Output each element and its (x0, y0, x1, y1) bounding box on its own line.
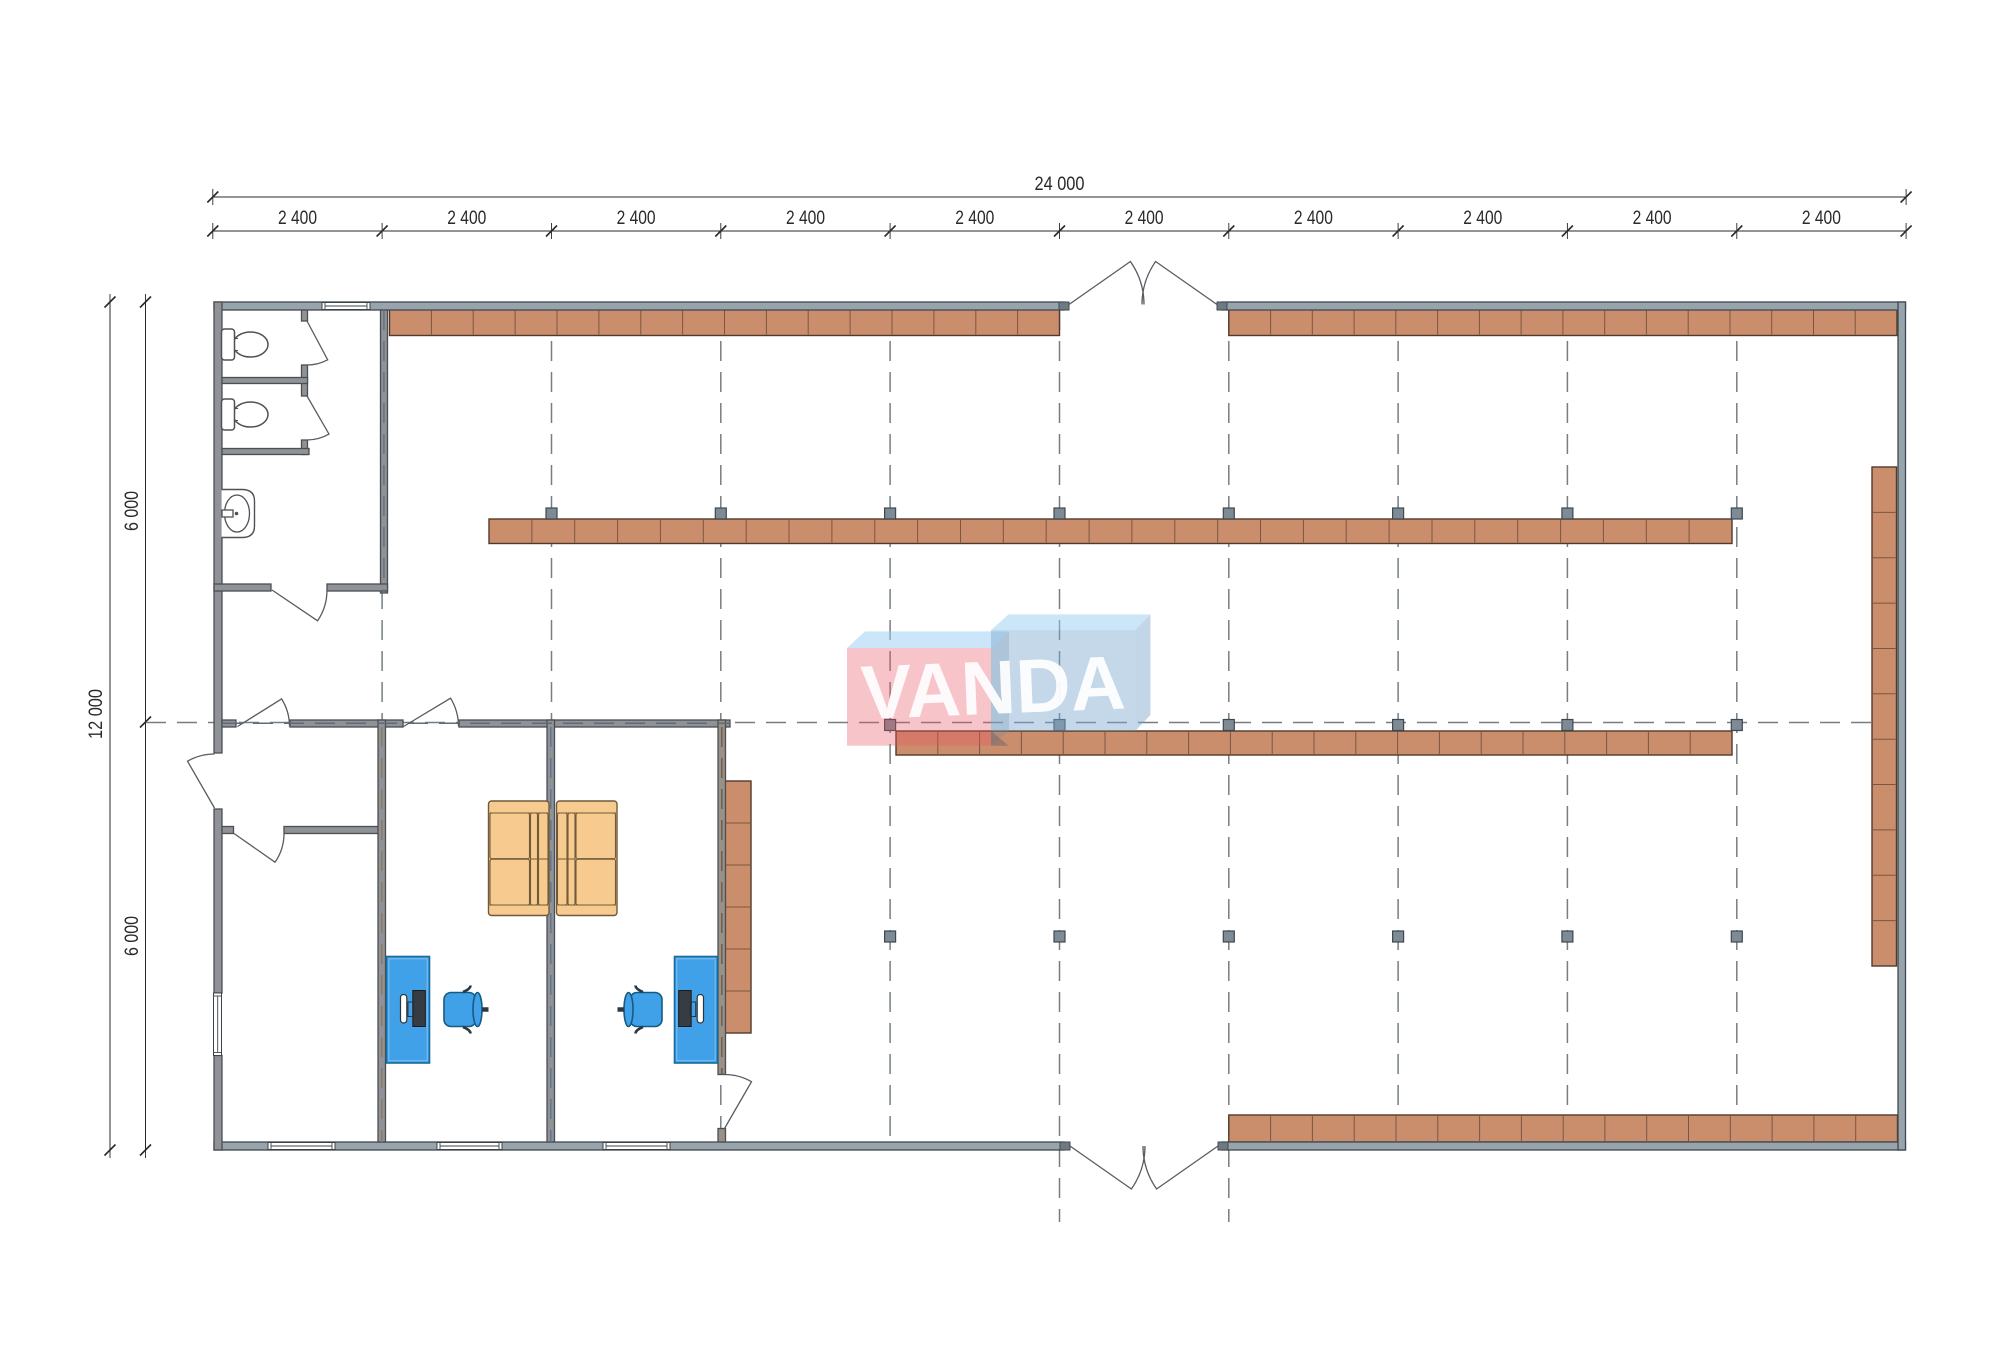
svg-text:2 400: 2 400 (278, 208, 317, 229)
svg-text:2 400: 2 400 (786, 208, 825, 229)
svg-text:2 400: 2 400 (1802, 208, 1841, 229)
svg-text:12 000: 12 000 (86, 689, 107, 739)
svg-text:2 400: 2 400 (955, 208, 994, 229)
svg-text:24 000: 24 000 (1035, 174, 1085, 195)
svg-text:6 000: 6 000 (122, 916, 143, 956)
svg-text:2 400: 2 400 (617, 208, 656, 229)
svg-text:2 400: 2 400 (1125, 208, 1164, 229)
svg-text:6 000: 6 000 (122, 491, 143, 531)
svg-text:2 400: 2 400 (1294, 208, 1333, 229)
svg-text:VANDA: VANDA (859, 640, 1127, 736)
svg-text:2 400: 2 400 (447, 208, 486, 229)
svg-text:2 400: 2 400 (1463, 208, 1502, 229)
svg-text:2 400: 2 400 (1633, 208, 1672, 229)
